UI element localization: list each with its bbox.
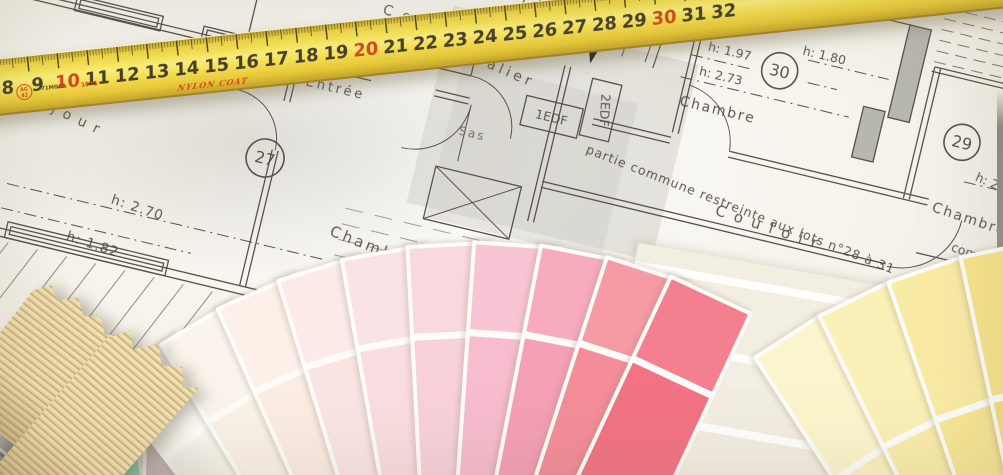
photo-vignette [0, 0, 1003, 475]
photo-scene: 27 30 29 Séjour Couloir Entrée Palier Sa… [0, 0, 1003, 475]
